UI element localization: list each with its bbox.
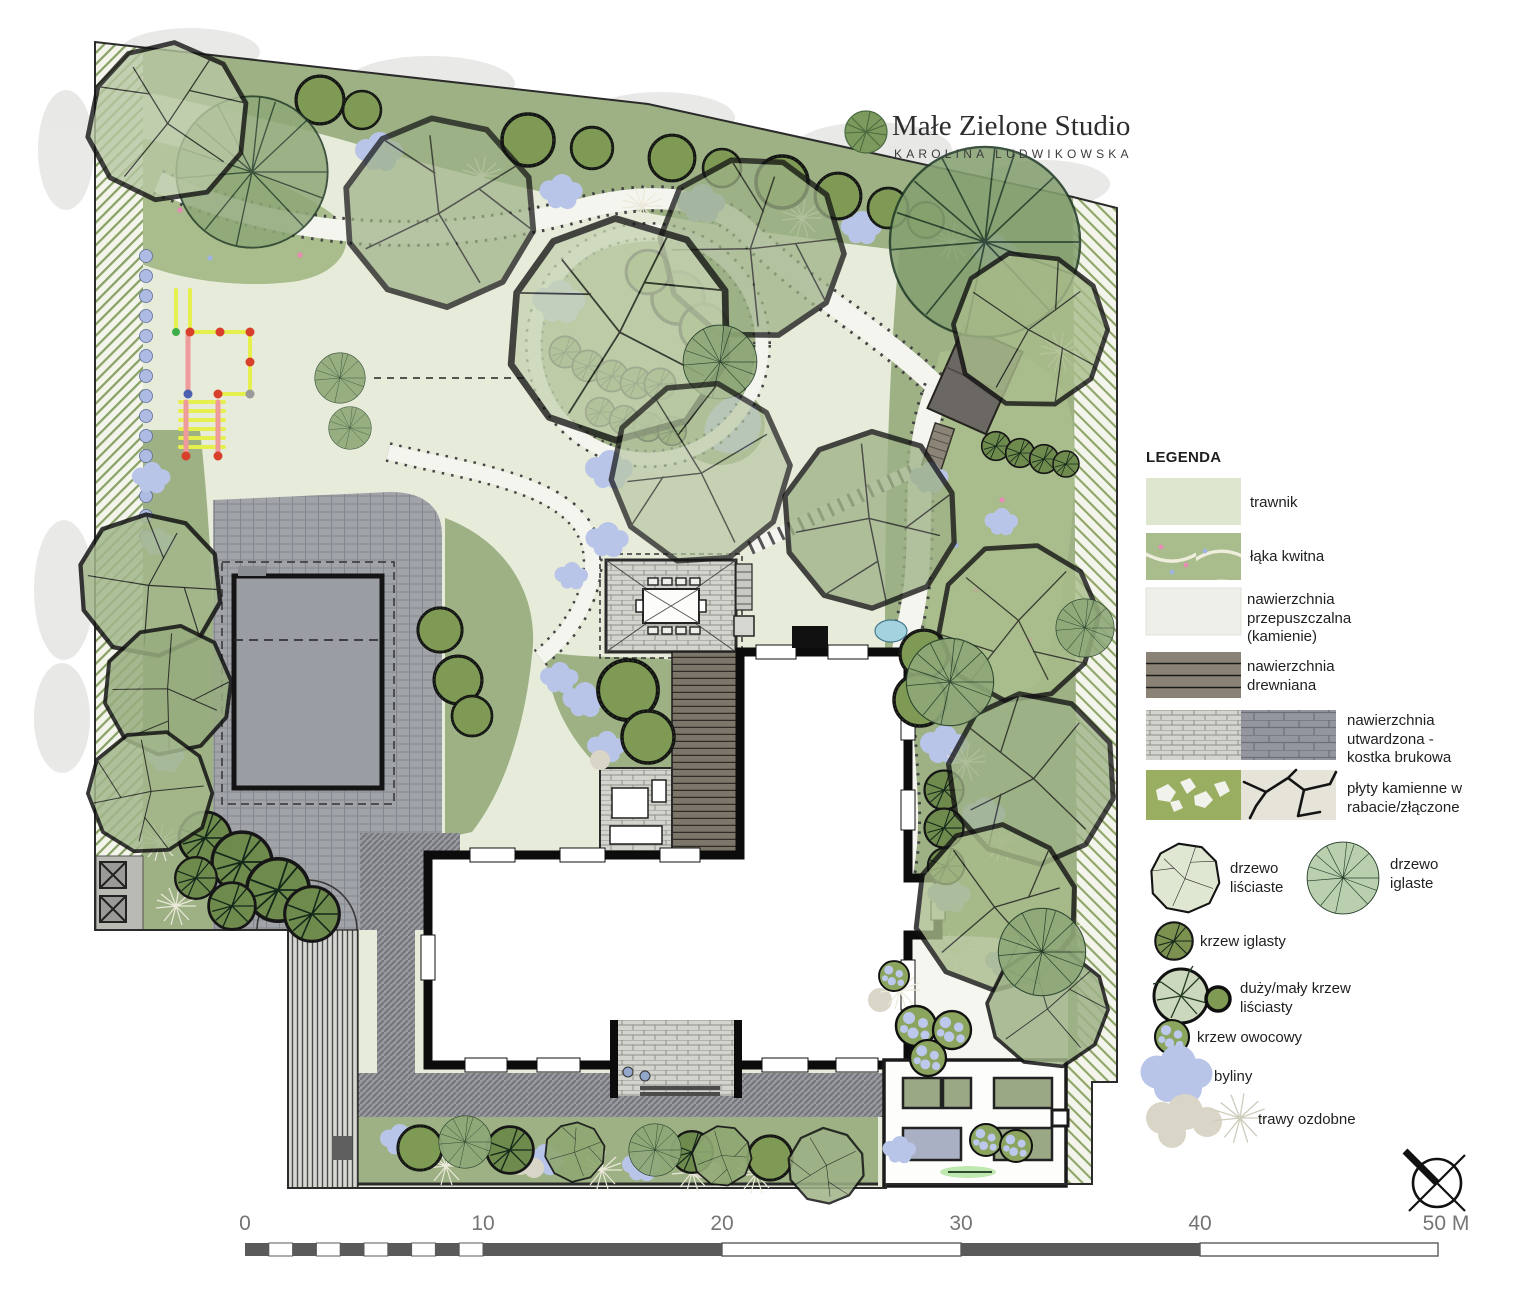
scale-label-20: 20 [710, 1212, 733, 1236]
wooden-deck [672, 652, 740, 852]
gazebo [600, 554, 754, 658]
carport [234, 576, 382, 788]
swatch-permeable [1146, 588, 1241, 635]
legend-label-pavers: nawierzchnia utwardzona - kostka brukowa [1347, 712, 1462, 768]
studio-logo-icon [845, 111, 887, 153]
fence-strip [288, 930, 358, 1188]
legend-label-leafy-shrub: duży/mały krzew liściasty [1240, 980, 1380, 1017]
legend-label-grasses: trawy ozdobne [1258, 1111, 1388, 1130]
grill-counter [736, 564, 752, 610]
legend-label-conifer-shrub: krzew iglasty [1200, 933, 1330, 952]
garden-design-sheet: Małe Zielone Studio KAROLINA LUDWIKOWSKA… [0, 0, 1526, 1297]
legend-label-perennials: byliny [1214, 1068, 1314, 1087]
legend-label-lawn: trawnik [1250, 494, 1370, 513]
scale-label-0: 0 [239, 1212, 251, 1236]
legend-label-conifer-tree: drzewo iglaste [1390, 856, 1470, 893]
gate-pocket [96, 856, 143, 930]
legend-conifer-tree-icon [1307, 842, 1379, 914]
garden-plan-drawing [0, 0, 1526, 1297]
swatch-pavers [1146, 710, 1336, 760]
scale-label-30: 30 [949, 1212, 972, 1236]
scale-bar [245, 1243, 1438, 1256]
swatch-wood [1146, 652, 1241, 698]
legend-deciduous-tree-icon [1151, 844, 1219, 913]
scale-label-50m: 50 M [1423, 1212, 1470, 1236]
scale-label-10: 10 [471, 1212, 494, 1236]
swatch-stone-slabs [1146, 770, 1336, 820]
lounge-terrace [600, 768, 672, 852]
entrance-porch [614, 1020, 738, 1098]
legend-label-fruit-shrub: krzew owocowy [1197, 1029, 1337, 1048]
legend-perennials-icon [1141, 1045, 1213, 1104]
pond [875, 620, 907, 642]
garden-gate [1052, 1110, 1068, 1126]
legend-conifer-shrub-icon [1155, 922, 1192, 959]
perennial-border-dots [140, 250, 153, 543]
north-arrow-icon [1405, 1151, 1465, 1211]
legend-label-meadow: łąka kwitna [1250, 548, 1370, 567]
doormat [792, 626, 828, 648]
legend-label-deciduous-tree: drzewo liściaste [1230, 860, 1310, 897]
swatch-lawn [1146, 478, 1241, 525]
legend-label-permeable: nawierzchnia przepuszczalna (kamienie) [1247, 591, 1397, 647]
swatch-meadow [1146, 533, 1241, 580]
legend-leafy-shrub-icons [1153, 966, 1230, 1023]
vegetable-garden [884, 1060, 1068, 1186]
studio-name: Małe Zielone Studio [892, 110, 1130, 143]
legend-label-wood: nawierzchnia drewniana [1247, 658, 1377, 695]
legend-label-stone-slabs: płyty kamienne w rabacie/złączone [1347, 780, 1517, 817]
legend-title: LEGENDA [1146, 449, 1221, 466]
studio-author: KAROLINA LUDWIKOWSKA [894, 147, 1133, 161]
scale-label-40: 40 [1188, 1212, 1211, 1236]
